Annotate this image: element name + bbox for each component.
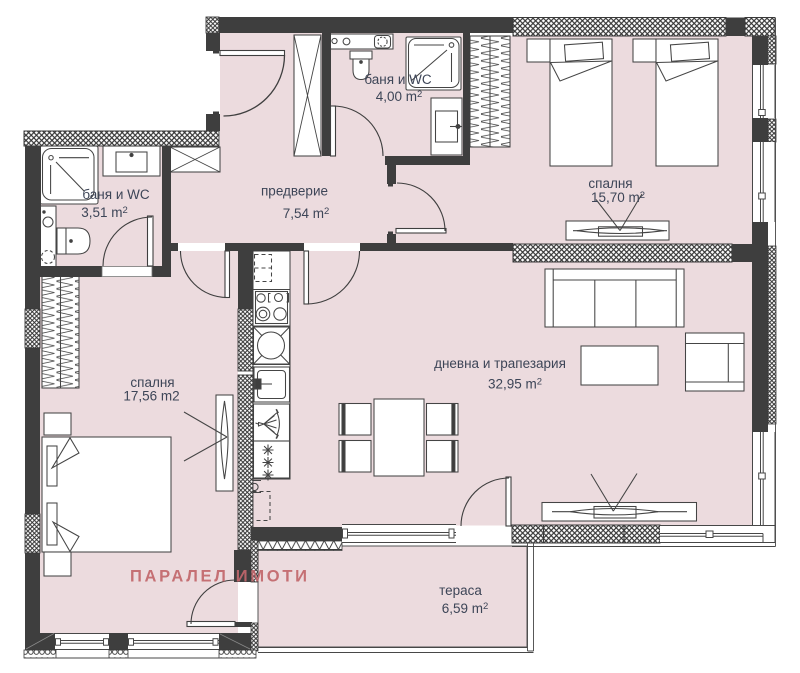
svg-text:спалня: спалня	[588, 176, 632, 191]
svg-text:17,56 m2: 17,56 m2	[123, 389, 179, 404]
svg-text:3,51 m2: 3,51 m2	[81, 205, 128, 220]
svg-text:ПАРАЛЕЛ ИМОТИ: ПАРАЛЕЛ ИМОТИ	[130, 568, 310, 586]
svg-text:4,00 m2: 4,00 m2	[376, 89, 423, 104]
svg-text:предверие: предверие	[261, 184, 328, 199]
svg-text:баня и WC: баня и WC	[364, 72, 431, 87]
svg-text:6,59 m2: 6,59 m2	[442, 601, 489, 616]
svg-text:7,54 m2: 7,54 m2	[283, 206, 330, 221]
svg-text:баня и WC: баня и WC	[82, 187, 149, 202]
svg-text:32,95 m2: 32,95 m2	[488, 377, 542, 392]
svg-text:15,70 m2: 15,70 m2	[591, 190, 645, 205]
svg-text:тераса: тераса	[439, 583, 482, 598]
svg-text:дневна и трапезария: дневна и трапезария	[434, 356, 566, 371]
